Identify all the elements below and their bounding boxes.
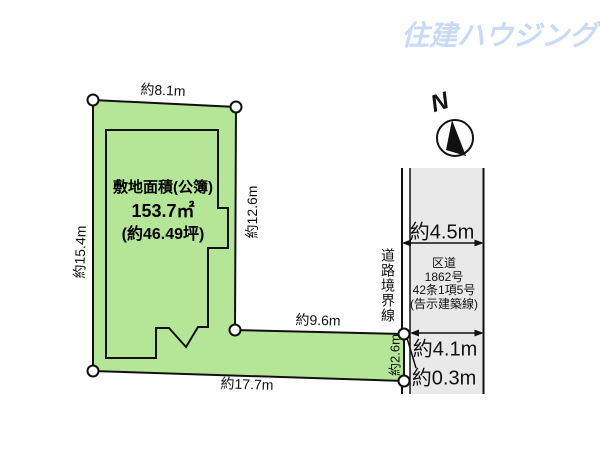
road-boundary-label: 道路境界線 <box>378 248 398 323</box>
dimension-right: 約12.6m <box>242 186 262 239</box>
dimension-strip-top: 約9.6m <box>295 309 341 330</box>
boundary-marker <box>231 102 242 113</box>
road-name-block: 区道 1862号 42条1項5号 (告示建築線) <box>404 257 484 311</box>
plot-plan-canvas: 住建ハウジング N 約8.1m 約15.4m 約12.6m 約9.6m 約17.… <box>0 0 600 450</box>
site-area-block: 敷地面積(公簿) 153.7㎡ (約46.49坪) <box>92 176 234 247</box>
north-compass <box>437 120 473 156</box>
road-name-line: (告示建築線) <box>404 298 484 312</box>
site-area-sqm: 153.7㎡ <box>92 199 234 223</box>
dimension-left: 約15.4m <box>69 225 91 279</box>
boundary-marker <box>88 366 99 377</box>
dimension-top: 約8.1m <box>140 79 186 101</box>
road-width-top-label: 約4.5m <box>410 216 474 245</box>
company-logo: 住建ハウジング <box>401 14 597 54</box>
boundary-marker <box>399 376 410 387</box>
road-name-line: 区道 <box>404 257 484 271</box>
road-width-bottom-label: 約4.1m <box>413 333 477 362</box>
site-area-title: 敷地面積(公簿) <box>92 176 234 199</box>
boundary-marker <box>230 325 241 336</box>
site-area-tsubo: (約46.49坪) <box>92 223 234 247</box>
road-name-line: 1862号 <box>404 271 484 285</box>
road-name-line: 42条1項5号 <box>404 284 484 298</box>
dimension-bottom: 約17.7m <box>220 373 274 395</box>
dimension-strip-right: 約2.6m <box>385 334 404 376</box>
boundary-marker <box>88 95 99 106</box>
road-offset-label: 約0.3m <box>412 362 476 391</box>
